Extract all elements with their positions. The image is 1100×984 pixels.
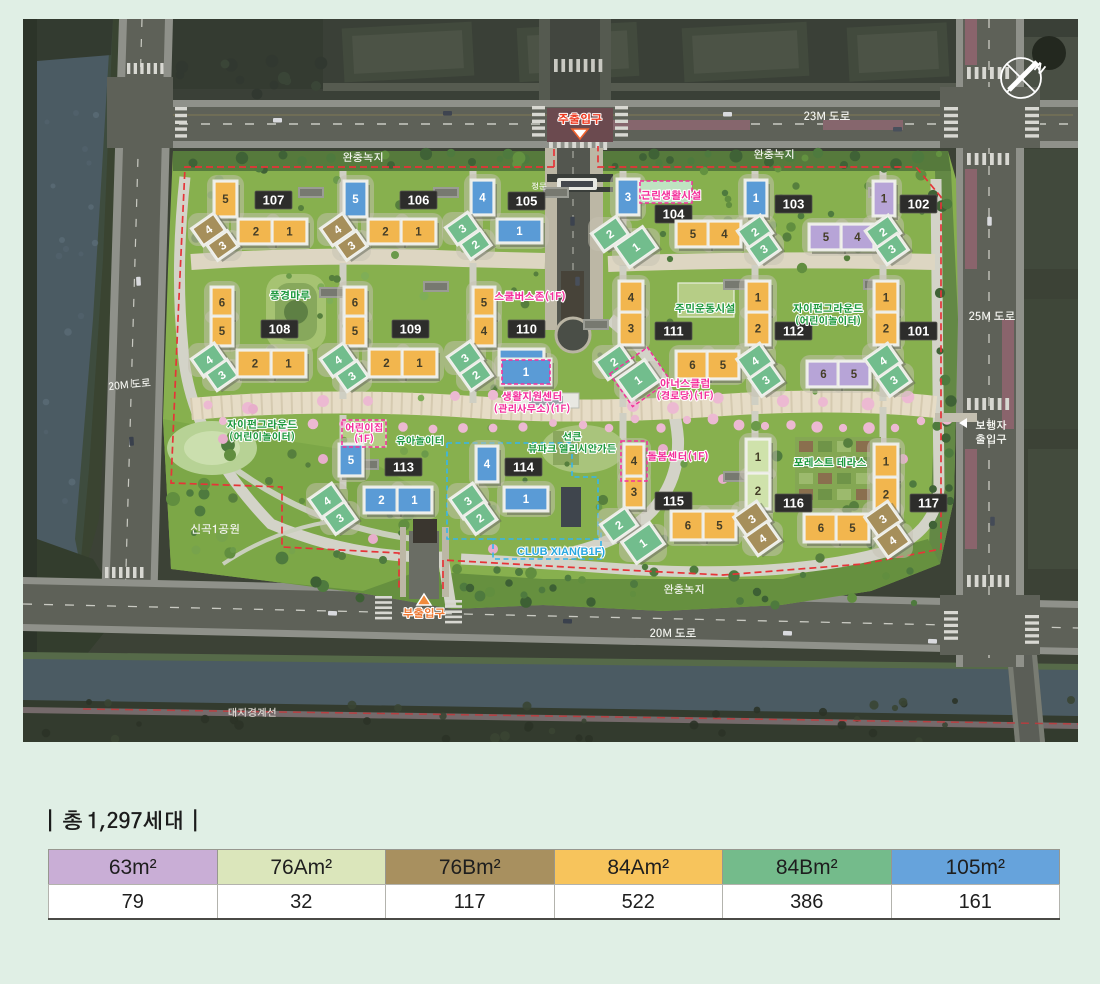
svg-text:1: 1 <box>881 194 888 206</box>
svg-text:104: 104 <box>663 207 685 222</box>
svg-text:1: 1 <box>755 293 762 305</box>
svg-text:5: 5 <box>219 326 226 338</box>
svg-text:5: 5 <box>823 232 830 244</box>
svg-text:5: 5 <box>851 369 858 381</box>
svg-text:5: 5 <box>222 194 229 206</box>
svg-text:1: 1 <box>285 359 292 371</box>
svg-text:1: 1 <box>753 193 760 205</box>
svg-text:5: 5 <box>481 298 488 310</box>
svg-text:6: 6 <box>352 298 358 310</box>
svg-text:1: 1 <box>411 495 418 507</box>
svg-text:1: 1 <box>523 494 530 506</box>
svg-text:5: 5 <box>352 194 359 206</box>
svg-text:1: 1 <box>516 226 523 238</box>
svg-text:1: 1 <box>416 358 423 370</box>
svg-text:5: 5 <box>348 455 355 467</box>
svg-text:117: 117 <box>918 496 939 511</box>
svg-text:102: 102 <box>908 197 930 212</box>
svg-text:112: 112 <box>783 324 804 339</box>
svg-text:2: 2 <box>253 227 259 239</box>
svg-text:108: 108 <box>269 322 291 337</box>
svg-text:103: 103 <box>783 197 805 212</box>
svg-text:116: 116 <box>783 496 804 511</box>
svg-text:1: 1 <box>883 457 890 469</box>
svg-text:CLUB XIAN(B1F): CLUB XIAN(B1F) <box>517 546 605 558</box>
svg-text:111: 111 <box>663 324 683 339</box>
svg-text:2: 2 <box>252 359 258 371</box>
svg-text:3: 3 <box>631 487 637 499</box>
svg-text:6: 6 <box>219 298 225 310</box>
svg-text:6: 6 <box>685 521 691 533</box>
svg-text:4: 4 <box>481 326 488 338</box>
svg-text:109: 109 <box>400 322 422 337</box>
svg-text:1: 1 <box>415 227 422 239</box>
svg-text:115: 115 <box>663 494 684 509</box>
svg-text:2: 2 <box>383 358 389 370</box>
svg-text:6: 6 <box>818 523 824 535</box>
svg-text:107: 107 <box>263 193 285 208</box>
svg-text:1: 1 <box>286 227 293 239</box>
svg-text:1: 1 <box>755 452 762 464</box>
svg-text:110: 110 <box>516 322 537 337</box>
svg-text:2: 2 <box>378 495 384 507</box>
svg-text:5: 5 <box>720 360 727 372</box>
svg-text:101: 101 <box>908 324 930 339</box>
svg-text:4: 4 <box>721 229 728 241</box>
svg-text:4: 4 <box>854 232 861 244</box>
svg-text:4: 4 <box>631 456 638 468</box>
svg-text:1: 1 <box>883 293 890 305</box>
svg-text:4: 4 <box>479 193 486 205</box>
svg-text:2: 2 <box>883 324 889 336</box>
svg-text:105: 105 <box>516 194 538 209</box>
svg-text:2: 2 <box>382 227 388 239</box>
svg-text:3: 3 <box>628 324 634 336</box>
svg-text:5: 5 <box>849 523 856 535</box>
svg-text:5: 5 <box>690 229 697 241</box>
svg-text:2: 2 <box>755 324 761 336</box>
svg-text:3: 3 <box>625 192 631 204</box>
svg-text:6: 6 <box>820 369 826 381</box>
svg-text:106: 106 <box>408 193 430 208</box>
svg-text:5: 5 <box>716 521 723 533</box>
svg-text:114: 114 <box>513 460 535 475</box>
svg-text:113: 113 <box>393 460 414 475</box>
svg-text:1: 1 <box>523 367 530 379</box>
svg-text:4: 4 <box>628 293 635 305</box>
svg-text:4: 4 <box>484 459 491 471</box>
svg-text:5: 5 <box>352 326 359 338</box>
svg-text:2: 2 <box>755 486 761 498</box>
svg-text:6: 6 <box>689 360 695 372</box>
